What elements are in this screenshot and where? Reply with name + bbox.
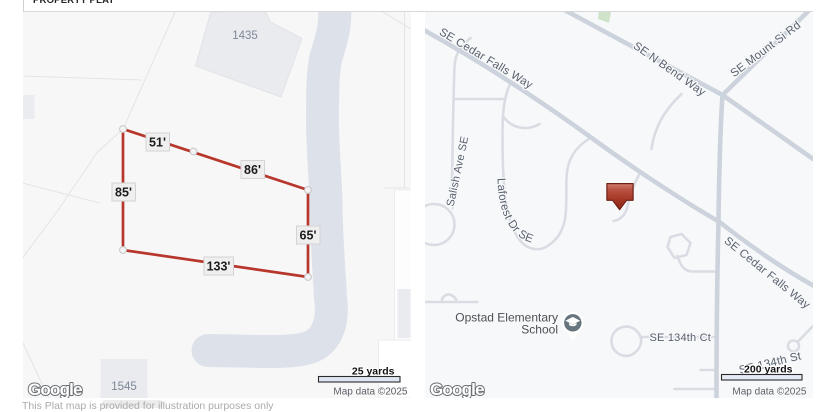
svg-text:1435: 1435 [232,30,258,42]
svg-text:School: School [521,322,558,336]
svg-text:65': 65' [300,229,317,243]
svg-text:86': 86' [244,163,261,177]
svg-text:Google: Google [430,380,484,398]
svg-text:200 yards: 200 yards [744,364,793,376]
svg-text:133': 133' [207,260,231,274]
svg-text:SE 134th Ct: SE 134th Ct [649,332,711,344]
svg-text:Map data ©2025: Map data ©2025 [333,387,408,398]
svg-text:Google: Google [28,380,82,398]
svg-text:Map data ©2025: Map data ©2025 [732,387,807,398]
svg-text:51': 51' [149,136,166,150]
svg-text:1545: 1545 [111,381,137,393]
svg-text:25 yards: 25 yards [352,366,395,378]
svg-text:85': 85' [115,186,132,200]
